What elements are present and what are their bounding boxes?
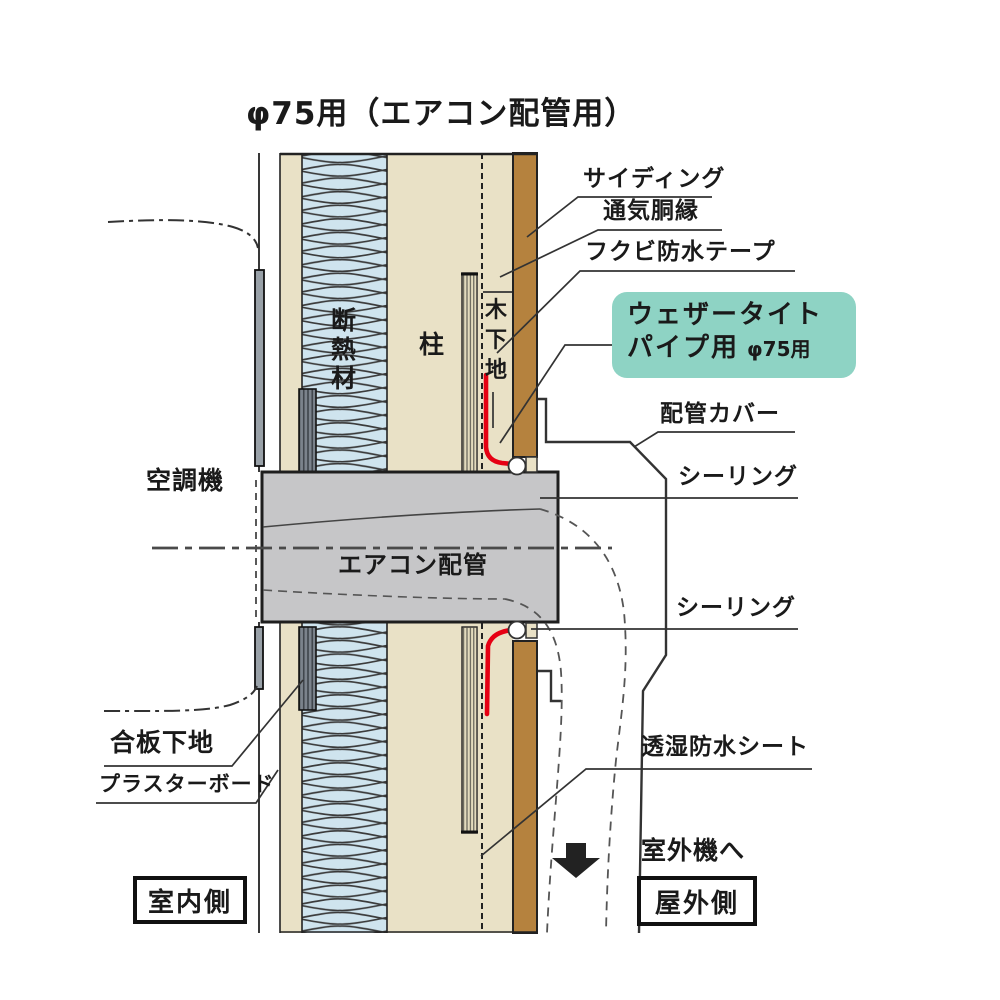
label-plywood-base: 合板下地 (110, 729, 214, 758)
indoor-side-box: 室内側 (133, 876, 247, 924)
label-plasterboard: プラスターボード (99, 772, 275, 796)
product-badge: ウェザータイト パイプ用φ75用 (612, 292, 856, 378)
product-badge-line2: パイプ用φ75用 (627, 332, 856, 365)
label-aircon-pipe: エアコン配管 (338, 552, 488, 580)
down-arrow-icon (552, 843, 600, 878)
label-housewrap: 透湿防水シート (641, 734, 809, 760)
label-waterproof-tape: フクビ防水テープ (585, 239, 776, 265)
label-wood-base: 木 下 地 (485, 296, 507, 386)
label-furring: 通気胴縁 (603, 198, 699, 224)
label-siding: サイディング (583, 166, 725, 192)
label-to-outdoor-unit: 室外機へ (641, 837, 745, 866)
label-pipe-cover: 配管カバー (660, 401, 780, 427)
label-column: 柱 (419, 331, 445, 360)
wall-section-drawing (0, 0, 1000, 1000)
outdoor-side-box: 屋外側 (637, 876, 757, 926)
label-ac-unit: 空調機 (146, 467, 224, 496)
label-sealing-top: シーリング (678, 464, 798, 490)
page-title: φ75用（エアコン配管用） (246, 88, 636, 133)
product-badge-size: φ75用 (747, 337, 810, 361)
product-badge-line1: ウェザータイト (627, 299, 856, 332)
label-insulation: 断 熱 材 (331, 306, 356, 393)
diagram-canvas: φ75用（エアコン配管用） サイディング 通気胴縁 フクビ防水テープ ウェザータ… (0, 0, 1000, 1000)
label-sealing-bottom: シーリング (676, 595, 796, 621)
